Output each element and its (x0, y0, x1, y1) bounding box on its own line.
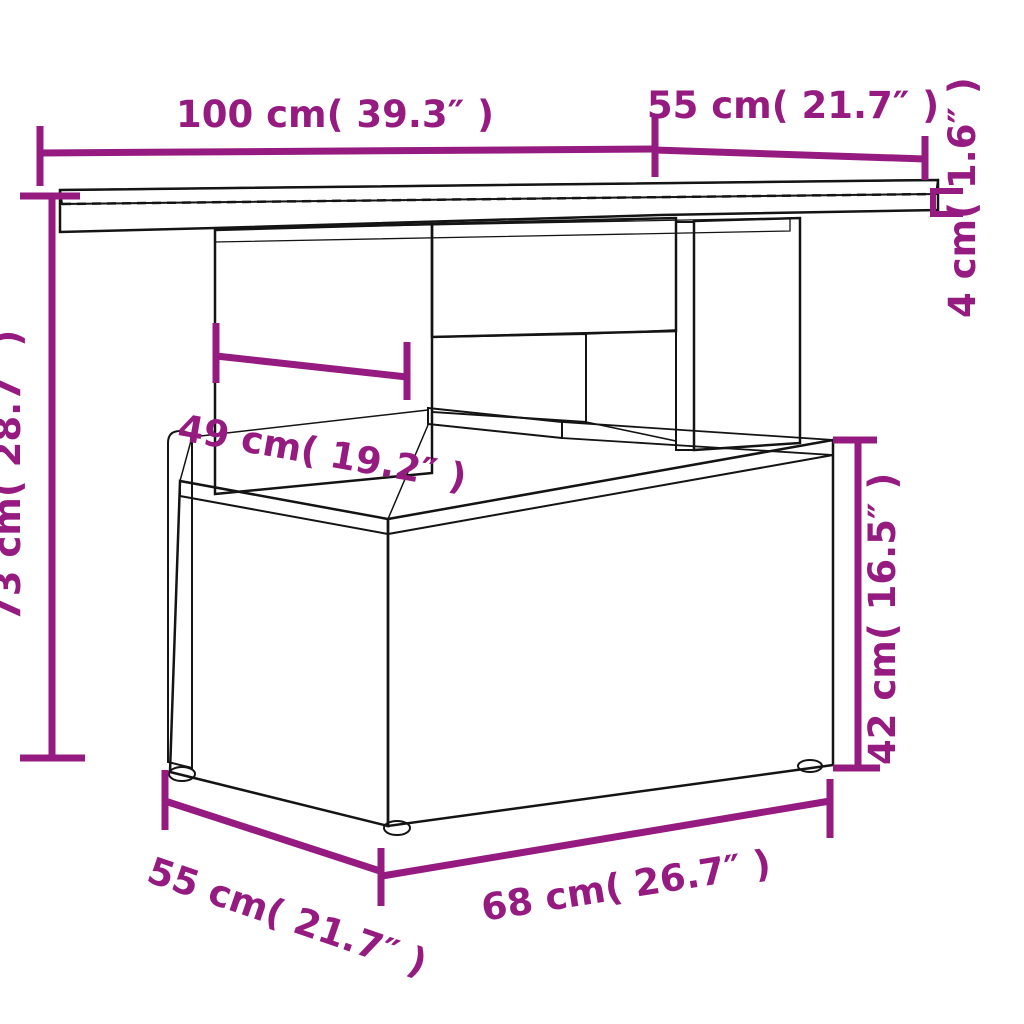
dim-base-depth-line (165, 801, 380, 871)
base-left-face (170, 481, 388, 826)
product-dimension-diagram: 100 cm( 39.3″ ) 55 cm( 21.7″ ) 4 cm( 1.6… (0, 0, 1024, 1024)
base-left-rim (180, 481, 388, 534)
dim-tabletop-thickness-label: 4 cm( 1.6″ ) (941, 77, 984, 318)
dim-opening-width: 49 cm( 19.2″ ) (175, 323, 470, 499)
dim-opening-width-label: 49 cm( 19.2″ ) (175, 406, 470, 499)
dim-table-depth: 55 cm( 21.7″ ) (647, 84, 939, 180)
base-right-face (388, 440, 833, 826)
furniture-drawing (60, 180, 938, 835)
dim-base-height: 42 cm( 16.5″ ) (833, 440, 904, 768)
pedestal-opening (432, 334, 586, 422)
dim-base-width: 68 cm( 26.7″ ) (382, 779, 830, 930)
dim-table-height-label: 73 cm( 28.7″ ) (0, 330, 29, 622)
dim-opening-width-line (216, 356, 407, 377)
glass-top (60, 180, 938, 204)
pedestal-right-column (694, 218, 800, 450)
dim-table-width: 100 cm( 39.3″ ) (40, 93, 655, 186)
dim-table-depth-label: 55 cm( 21.7″ ) (647, 84, 939, 127)
pedestal-inner-face (586, 330, 676, 441)
dim-base-depth-label: 55 cm( 21.7″ ) (142, 849, 432, 985)
dim-base-height-label: 42 cm( 16.5″ ) (861, 473, 904, 765)
foot-front (384, 821, 410, 835)
dim-table-depth-line (655, 150, 925, 159)
diagram-canvas: 100 cm( 39.3″ ) 55 cm( 21.7″ ) 4 cm( 1.6… (0, 0, 1024, 1024)
support-pole (676, 222, 694, 450)
dim-table-width-label: 100 cm( 39.3″ ) (176, 93, 494, 136)
dim-table-height: 73 cm( 28.7″ ) (0, 196, 85, 758)
dim-table-width-line (40, 149, 655, 153)
